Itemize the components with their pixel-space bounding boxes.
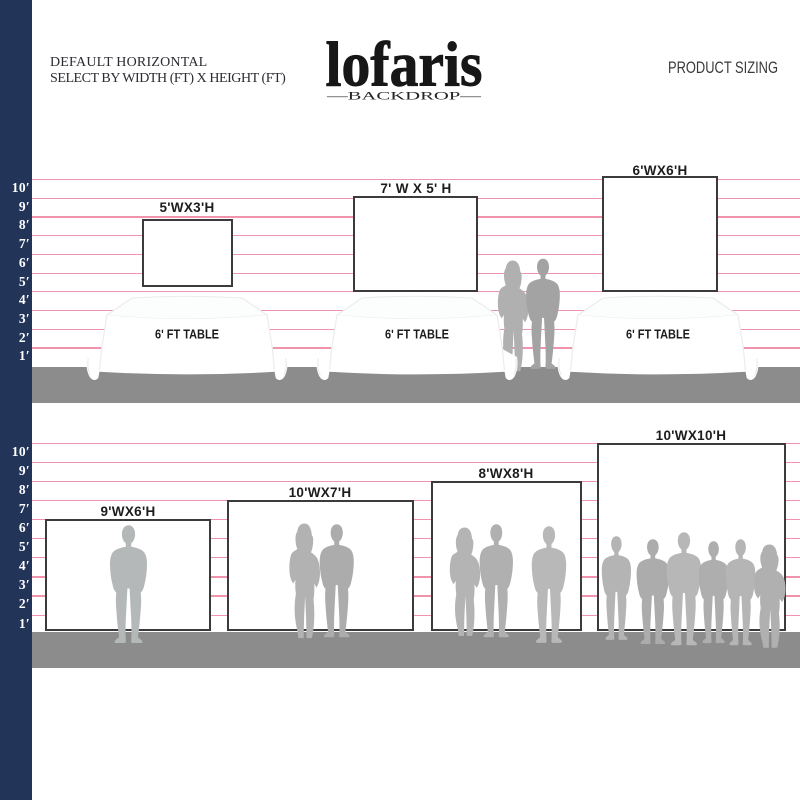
svg-text:—BACKDROP—: —BACKDROP—: [325, 89, 482, 103]
svg-text:6ʹ FT TABLE: 6ʹ FT TABLE: [626, 327, 690, 342]
svg-text:6ʹ FT TABLE: 6ʹ FT TABLE: [155, 327, 219, 342]
svg-text:PRODUCT SIZING: PRODUCT SIZING: [668, 59, 778, 77]
svg-text:6ʹ FT TABLE: 6ʹ FT TABLE: [385, 327, 449, 342]
